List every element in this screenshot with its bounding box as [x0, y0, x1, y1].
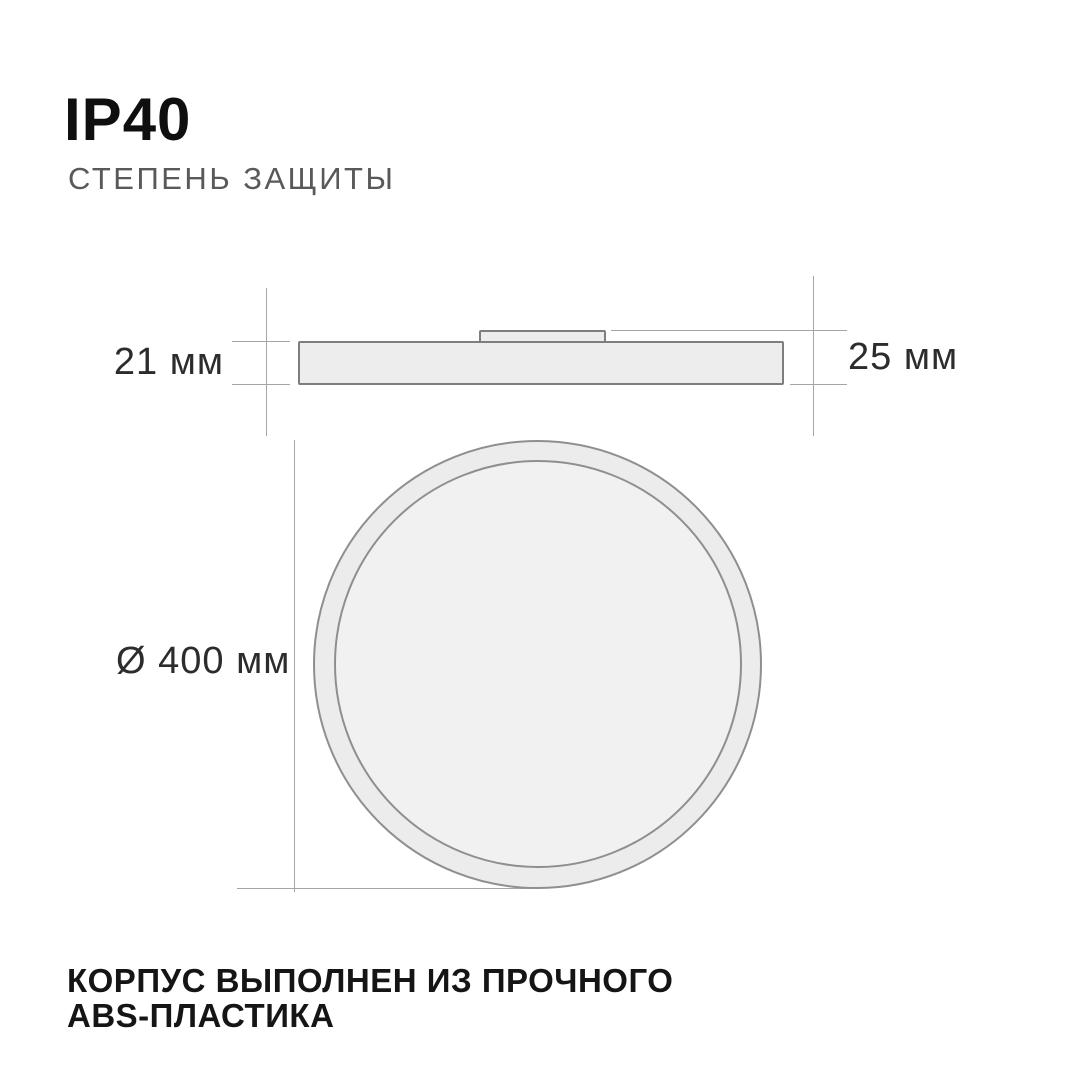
dim-label-diameter: Ø 400 мм — [116, 640, 290, 682]
dim-line-left-vertical — [266, 288, 267, 436]
dim-line-baseline — [237, 888, 533, 889]
material-note: КОРПУС ВЫПОЛНЕН ИЗ ПРОЧНОГО ABS-ПЛАСТИКА — [67, 963, 673, 1033]
lamp-body-side — [298, 341, 784, 385]
dim-line-diameter-vertical — [294, 440, 295, 892]
page-subtitle: СТЕПЕНЬ ЗАЩИТЫ — [68, 163, 395, 194]
product-spec-card: IP40 СТЕПЕНЬ ЗАЩИТЫ 21 мм 25 мм Ø 400 мм… — [0, 0, 1080, 1080]
lamp-inner-circle — [334, 460, 742, 868]
material-note-line1: КОРПУС ВЫПОЛНЕН ИЗ ПРОЧНОГО — [67, 963, 673, 998]
dim-tick-right-bottom — [790, 384, 847, 385]
page-title: IP40 — [64, 90, 191, 150]
dim-tick-left-top — [232, 341, 290, 342]
dim-line-right-horizontal — [611, 330, 847, 331]
dim-tick-left-bottom — [232, 384, 290, 385]
dim-label-body-height: 21 мм — [96, 341, 224, 383]
dim-line-right-vertical — [813, 276, 814, 436]
material-note-line2: ABS-ПЛАСТИКА — [67, 998, 673, 1033]
dim-label-total-height: 25 мм — [848, 336, 958, 378]
